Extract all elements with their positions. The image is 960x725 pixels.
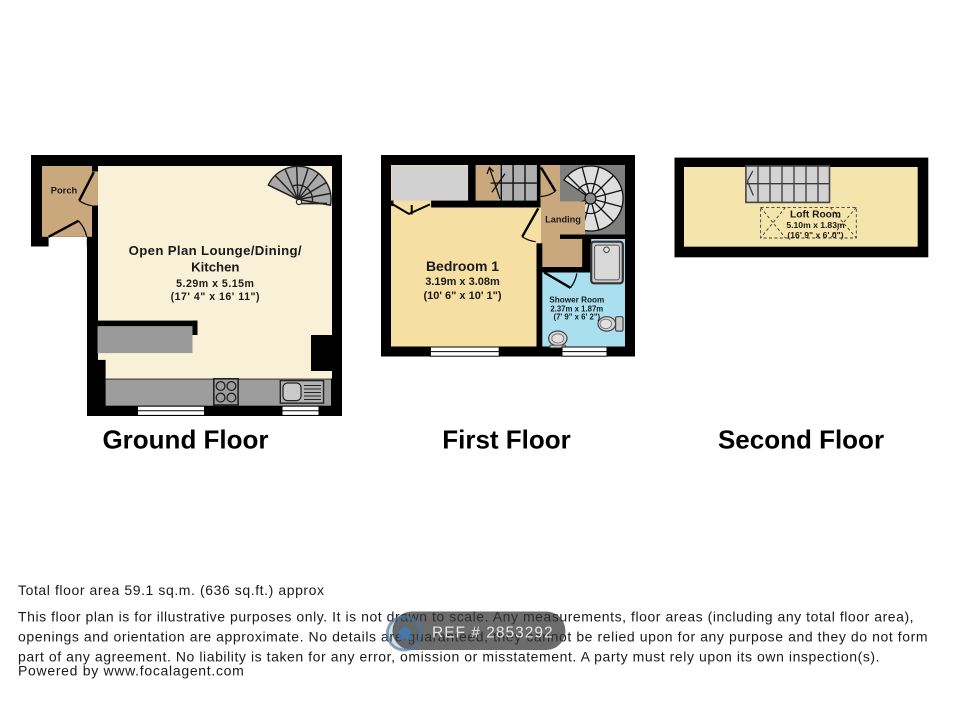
svg-text:(16' 9" x 6' 0"): (16' 9" x 6' 0") <box>787 230 843 240</box>
svg-text:5.29m x 5.15m: 5.29m x 5.15m <box>176 278 254 290</box>
svg-text:First Floor: First Floor <box>442 425 571 455</box>
svg-text:Landing: Landing <box>545 214 581 224</box>
svg-text:Shower Room: Shower Room <box>549 295 604 304</box>
svg-text:Total floor area 59.1 sq.m. (6: Total floor area 59.1 sq.m. (636 sq.ft.)… <box>18 582 325 598</box>
svg-text:REF # 2853292: REF # 2853292 <box>432 625 554 642</box>
svg-text:Loft Room: Loft Room <box>790 210 841 221</box>
svg-text:Ground Floor: Ground Floor <box>102 425 268 455</box>
svg-text:(17' 4" x 16' 11"): (17' 4" x 16' 11") <box>171 291 260 303</box>
svg-text:Open Plan Lounge/Dining/: Open Plan Lounge/Dining/ <box>129 243 302 258</box>
svg-text:Porch: Porch <box>51 184 78 195</box>
svg-text:Bedroom 1: Bedroom 1 <box>426 258 499 274</box>
svg-text:(10' 6" x 10' 1"): (10' 6" x 10' 1") <box>423 290 501 302</box>
svg-text:Second Floor: Second Floor <box>718 425 884 455</box>
svg-text:5.10m x 1.83m: 5.10m x 1.83m <box>786 220 845 230</box>
svg-text:Kitchen: Kitchen <box>191 260 239 275</box>
svg-text:(7' 9" x 6' 2"): (7' 9" x 6' 2") <box>553 312 600 321</box>
svg-text:3.19m x 3.08m: 3.19m x 3.08m <box>425 276 500 288</box>
svg-text:Powered by www.focalagent.com: Powered by www.focalagent.com <box>18 663 245 679</box>
